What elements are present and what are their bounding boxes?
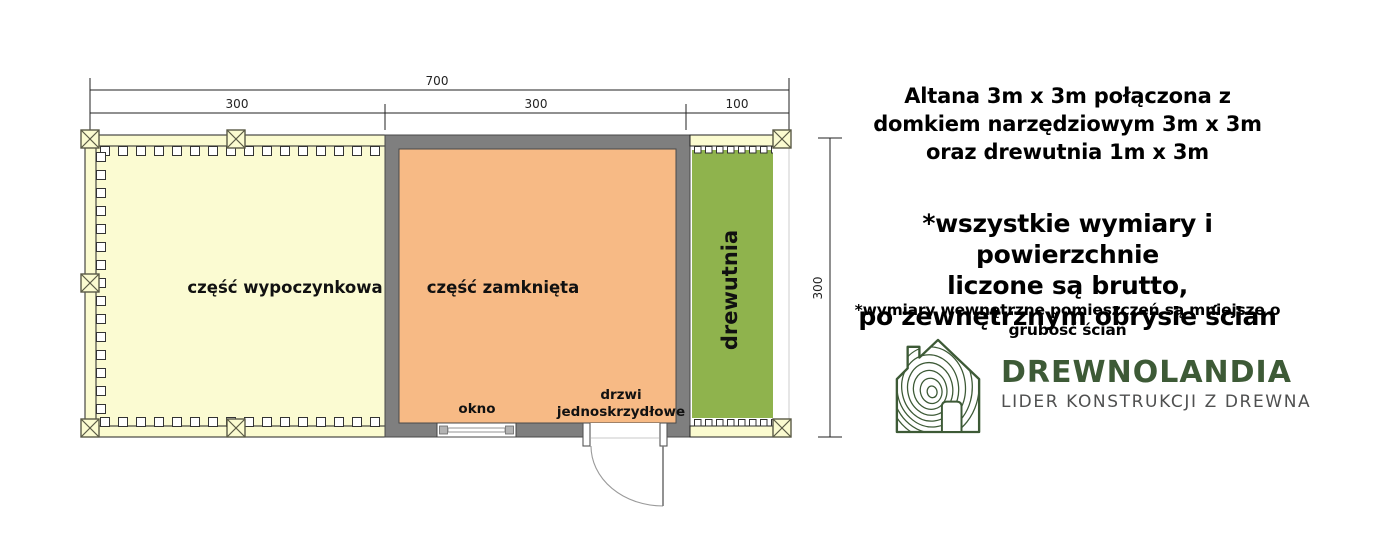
post-top-left <box>81 130 99 148</box>
door-jamb-left <box>583 423 590 446</box>
dim-segment-1: 300 <box>226 97 249 111</box>
woodshed-balusters-top <box>694 146 773 154</box>
door-jamb-right <box>660 423 667 446</box>
dim-total-width: 700 <box>426 74 449 88</box>
area-closed-room <box>385 135 690 506</box>
post-bottom-left <box>81 419 99 437</box>
dim-segment-2: 300 <box>525 97 548 111</box>
door-swing-arc <box>591 446 663 506</box>
woodshed-balusters-bottom <box>694 419 773 427</box>
dim-height: 300 <box>811 277 825 300</box>
post-bottom-mid <box>227 419 245 437</box>
post-woodshed-top-right <box>773 130 791 148</box>
dim-segment-3: 100 <box>726 97 749 111</box>
label-closed-room: część zamknięta <box>427 278 579 297</box>
label-door-line2: jednoskrzydłowe <box>556 404 685 420</box>
floor-plan-drawing: 700 300 300 100 300 <box>0 0 1375 535</box>
post-left-mid <box>81 274 99 292</box>
post-top-mid <box>227 130 245 148</box>
label-open-terrace: część wypoczynkowa <box>187 278 382 297</box>
window-symbol <box>437 423 516 437</box>
label-woodshed: drewutnia <box>718 230 742 350</box>
floor-plan-page: 700 300 300 100 300 <box>0 0 1375 535</box>
label-door-line1: drzwi <box>600 387 641 403</box>
label-window: okno <box>458 401 495 417</box>
door-symbol <box>583 423 667 506</box>
post-woodshed-bottom-right <box>773 419 791 437</box>
